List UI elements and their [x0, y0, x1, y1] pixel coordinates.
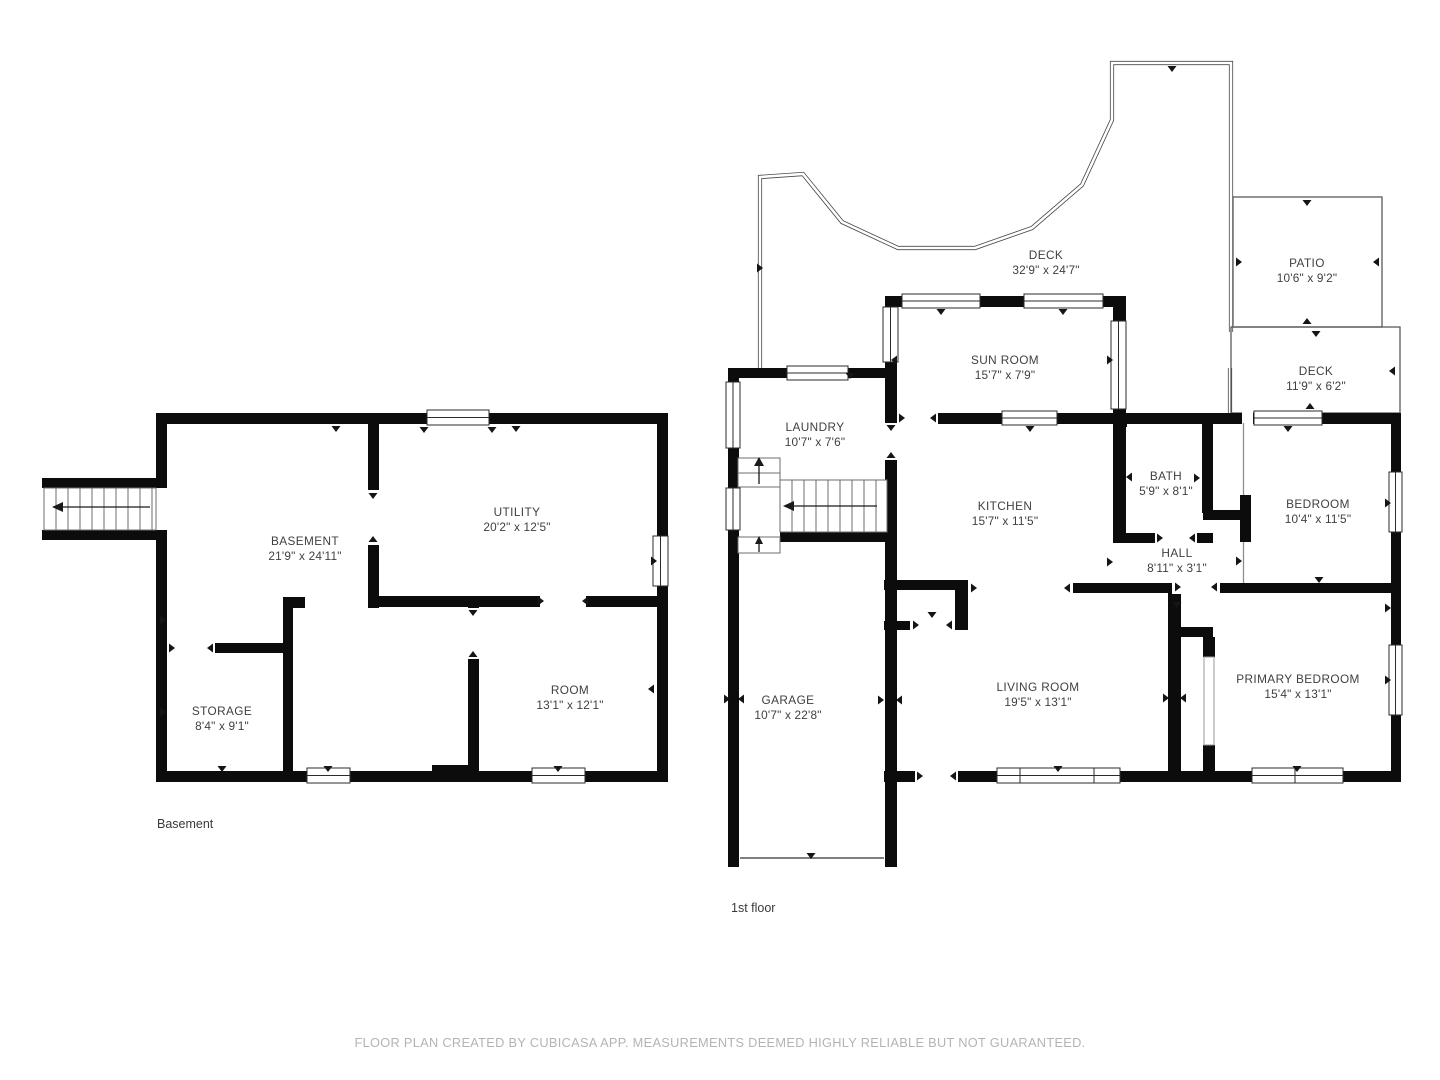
room-dimensions: 20'2" x 12'5" [483, 520, 550, 535]
room-dimensions: 10'7" x 22'8" [754, 708, 821, 723]
room-label-primary: PRIMARY BEDROOM 15'4" x 13'1" [1236, 672, 1360, 702]
room-name: GARAGE [754, 693, 821, 708]
room-label-deck: DECK 32'9" x 24'7" [1012, 248, 1079, 278]
room-name: PATIO [1277, 256, 1338, 271]
room-name: LAUNDRY [785, 420, 846, 435]
room-name: LIVING ROOM [996, 680, 1079, 695]
room-label-bath: BATH 5'9" x 8'1" [1139, 469, 1193, 499]
room-name: DECK [1286, 364, 1346, 379]
floor-label-basement: Basement [157, 817, 213, 831]
room-dimensions: 15'7" x 11'5" [972, 514, 1038, 529]
room-dimensions: 19'5" x 13'1" [996, 695, 1079, 710]
room-dimensions: 8'11" x 3'1" [1147, 561, 1207, 576]
floorplan-canvas [0, 0, 1440, 1080]
room-dimensions: 15'4" x 13'1" [1236, 687, 1360, 702]
room-label-storage: STORAGE 8'4" x 9'1" [192, 704, 252, 734]
room-dimensions: 8'4" x 9'1" [192, 719, 252, 734]
room-dimensions: 13'1" x 12'1" [536, 698, 603, 713]
room-label-hall: HALL 8'11" x 3'1" [1147, 546, 1207, 576]
room-dimensions: 5'9" x 8'1" [1139, 484, 1193, 499]
room-label-living: LIVING ROOM 19'5" x 13'1" [996, 680, 1079, 710]
basement-stairs-icon [44, 488, 156, 530]
room-name: ROOM [536, 683, 603, 698]
room-name: DECK [1012, 248, 1079, 263]
room-dimensions: 10'7" x 7'6" [785, 435, 846, 450]
room-label-patio: PATIO 10'6" x 9'2" [1277, 256, 1338, 286]
room-name: SUN ROOM [971, 353, 1039, 368]
room-dimensions: 21'9" x 24'11" [268, 549, 341, 564]
room-label-basement: BASEMENT 21'9" x 24'11" [268, 534, 341, 564]
room-name: KITCHEN [972, 499, 1038, 514]
room-name: BASEMENT [268, 534, 341, 549]
room-dimensions: 11'9" x 6'2" [1286, 379, 1346, 394]
room-name: PRIMARY BEDROOM [1236, 672, 1360, 687]
room-dimensions: 32'9" x 24'7" [1012, 263, 1079, 278]
disclaimer-text: FLOOR PLAN CREATED BY CUBICASA APP. MEAS… [0, 1035, 1440, 1050]
room-name: STORAGE [192, 704, 252, 719]
primary-closet-opening [1204, 657, 1214, 745]
room-label-garage: GARAGE 10'7" x 22'8" [754, 693, 821, 723]
room-name: HALL [1147, 546, 1207, 561]
first-floor-door-gaps [883, 412, 1253, 783]
room-name: BEDROOM [1285, 497, 1351, 512]
room-label-laundry: LAUNDRY 10'7" x 7'6" [785, 420, 846, 450]
floor-label-first: 1st floor [731, 901, 775, 915]
room-label-kitchen: KITCHEN 15'7" x 11'5" [972, 499, 1038, 529]
room-label-sunroom: SUN ROOM 15'7" x 7'9" [971, 353, 1039, 383]
room-dimensions: 15'7" x 7'9" [971, 368, 1039, 383]
room-label-deck2: DECK 11'9" x 6'2" [1286, 364, 1346, 394]
room-label-room: ROOM 13'1" x 12'1" [536, 683, 603, 713]
room-label-utility: UTILITY 20'2" x 12'5" [483, 505, 550, 535]
room-dimensions: 10'4" x 11'5" [1285, 512, 1351, 527]
room-name: BATH [1139, 469, 1193, 484]
room-dimensions: 10'6" x 9'2" [1277, 271, 1338, 286]
floorplan-page: BASEMENT 21'9" x 24'11" UTILITY 20'2" x … [0, 0, 1440, 1080]
room-label-bedroom: BEDROOM 10'4" x 11'5" [1285, 497, 1351, 527]
room-name: UTILITY [483, 505, 550, 520]
